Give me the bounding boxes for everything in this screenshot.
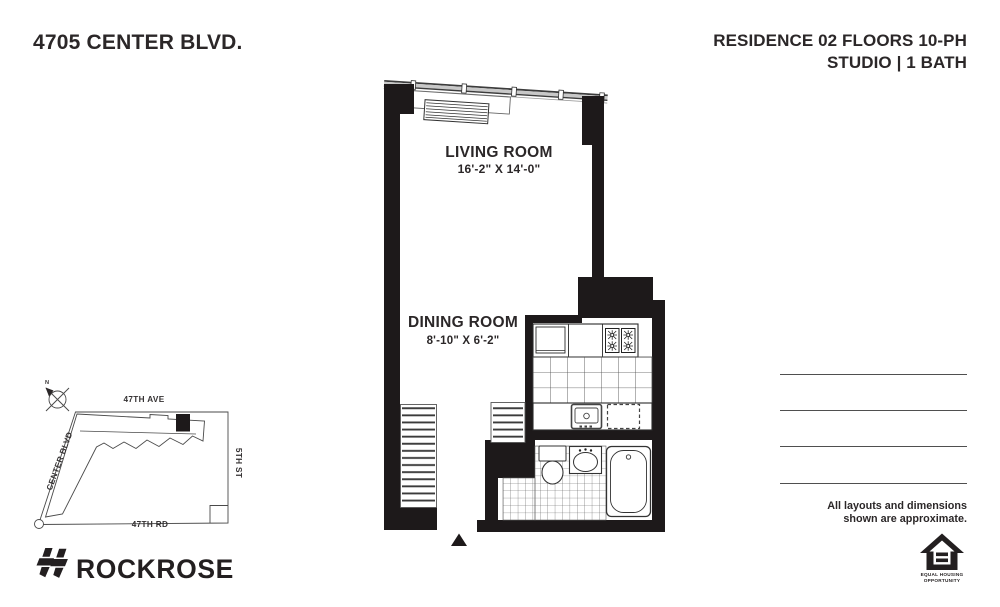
equal-housing-text-1: EQUAL HOUSING: [921, 572, 964, 577]
rockrose-logo-mark-icon: [37, 548, 68, 578]
bathroom-sink-icon: [570, 447, 602, 474]
dishwasher-icon: [608, 405, 640, 429]
compass-icon: [46, 388, 70, 412]
hvac-unit-icon: [424, 100, 489, 124]
kitchen: [533, 324, 652, 430]
dining-room-dimensions: 8'-10" X 6'-2": [427, 335, 500, 347]
rockrose-wordmark: ROCKROSE: [76, 554, 234, 584]
living-room-dimensions: 16'-2" X 14'-0": [458, 162, 541, 176]
street-label-47th-rd: 47TH RD: [132, 520, 169, 529]
parcel-notch: [210, 506, 228, 524]
living-room-label: LIVING ROOM: [445, 144, 553, 161]
street-label-47th-ave: 47TH AVE: [123, 395, 164, 404]
kitchen-floor-tiles: [533, 357, 652, 403]
equal-housing-logo: EQUAL HOUSING OPPORTUNITY: [920, 534, 964, 584]
site-map: N 47TH AVE CENTER BLVD 5TH ST 47TH RD: [35, 380, 244, 529]
kitchen-sink-icon: [572, 405, 602, 429]
bathtub-icon: [607, 447, 651, 517]
floor-plan-sheet: 4705 CENTER BLVD. RESIDENCE 02 FLOORS 10…: [0, 0, 1000, 607]
compass-north-label: N: [45, 380, 49, 386]
window-wall-icon: [382, 79, 608, 132]
unit-location-marker: [176, 414, 190, 432]
entry-marker-icon: [451, 534, 467, 547]
floor-plan: LIVING ROOM 16'-2" X 14'-0" DINING ROOM …: [382, 79, 665, 546]
bathroom-floor-tiles: [503, 478, 535, 520]
street-label-5th-st: 5TH ST: [234, 448, 243, 478]
corner-marker: [35, 520, 44, 529]
sheet-graphics: LIVING ROOM 16'-2" X 14'-0" DINING ROOM …: [0, 0, 1000, 607]
equal-housing-text-2: OPPORTUNITY: [924, 578, 961, 583]
rockrose-logo: ROCKROSE: [37, 548, 234, 584]
dining-room-label: DINING ROOM: [408, 314, 518, 331]
